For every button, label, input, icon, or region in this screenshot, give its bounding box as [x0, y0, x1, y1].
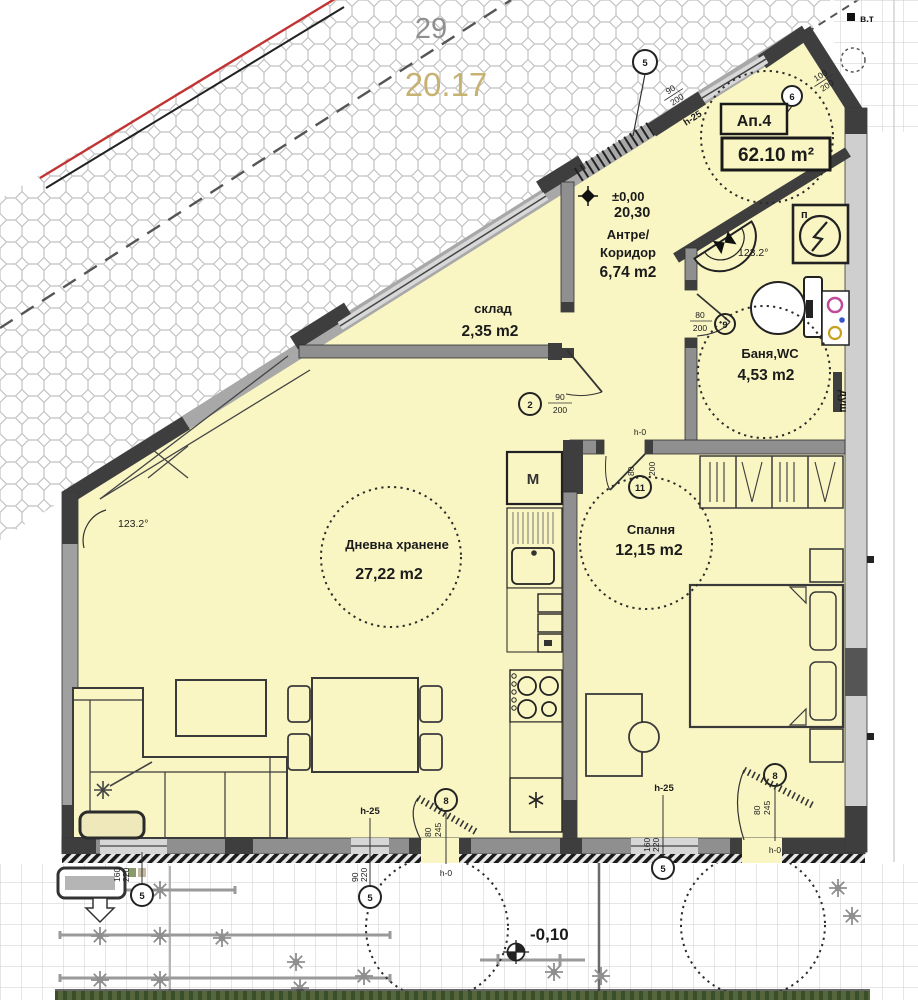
wardrobe: [700, 456, 843, 508]
sill-height-label-living: h-25: [360, 806, 380, 817]
washer-label: M: [527, 471, 540, 488]
bedroom-north-wall-right: [645, 440, 845, 454]
bedroom-area-label: 12,15 m2: [615, 542, 683, 559]
kitchen-wall-pier-bottom: [563, 800, 577, 838]
nightstand: [810, 549, 843, 582]
left-window-number: 5: [139, 891, 145, 902]
dining-set: [288, 678, 442, 772]
toilet-bowl: [751, 282, 805, 334]
kitchen-east-wall: [563, 492, 577, 838]
grass-strip: [55, 991, 870, 1000]
sill-height-label-bedroom: h-25: [654, 783, 674, 794]
storage-door-height: 200: [553, 405, 567, 415]
angle-bath-label: 123.2°: [738, 247, 768, 259]
right-wall-tick-2: [867, 733, 874, 740]
bedroom-balcony-width: 80: [752, 805, 762, 815]
tv-table: [176, 680, 266, 736]
dining-chair: [420, 734, 442, 770]
storage-area-label: 2,35 m2: [462, 323, 519, 340]
left-window-height: 220: [121, 868, 131, 882]
bedroom-door-height: 200: [647, 462, 657, 476]
bedroom-window-height: 220: [651, 838, 661, 852]
shower-label: душ: [837, 390, 849, 412]
right-wall-pier-mid: [845, 648, 867, 696]
toilet-flush: [806, 300, 813, 318]
kitchen-cabinet-2: [538, 614, 562, 632]
storage-south-wall: [299, 345, 560, 358]
nightstand: [810, 729, 843, 762]
mid-window-number: 5: [367, 893, 373, 904]
threshold-label-living: h-0: [440, 868, 453, 878]
storage-name-label: склад: [474, 301, 512, 316]
dining-table: [312, 678, 418, 772]
hall-name-line1: Антре/: [607, 227, 650, 242]
right-wall-pier-top: [845, 108, 867, 134]
bath-door-jamb-1: [685, 280, 697, 290]
living-name-label: Дневна хранене: [345, 537, 449, 552]
living-area-label: 27,22 m2: [355, 566, 423, 583]
angle-living-label: 123.2°: [118, 518, 148, 530]
mid-window-height: 220: [359, 868, 369, 882]
storage-door-width: 90: [555, 392, 565, 402]
floor-plan-canvas: в.т 29 20.17 -0,10: [0, 0, 918, 1000]
storage-marker-number: 2: [527, 400, 532, 411]
dining-chair: [420, 686, 442, 722]
bath-marker-number: 9: [722, 320, 727, 331]
benchmark-icon: [847, 13, 855, 21]
panel-label: п: [801, 209, 808, 221]
garden-area: -0,10: [0, 853, 918, 1000]
bath-door-height: 200: [693, 323, 707, 333]
bath-west-wall-lower: [685, 338, 697, 452]
storage-east-wall: [561, 182, 574, 312]
apt-number-label: Ап.4: [737, 113, 772, 130]
bedroom-door-width: 80: [626, 466, 636, 476]
door-marker-entry-number: 5: [642, 58, 648, 69]
bath-area-label: 4,53 m2: [738, 367, 795, 384]
desk-chair: [629, 722, 659, 752]
living-balcony-width: 80: [423, 827, 433, 837]
dining-chair: [288, 686, 310, 722]
bedroom-window-number: 5: [660, 864, 666, 875]
ottoman: [80, 812, 144, 838]
hall-area-label: 6,74 m2: [600, 264, 657, 281]
bath-name-label: Баня,WC: [741, 346, 799, 361]
kitchen-cabinet-1: [538, 594, 562, 612]
kitchen-cabinet-mark: [544, 640, 552, 646]
living-balcony-number: 8: [443, 796, 448, 807]
pillow: [810, 592, 836, 650]
storage-wall-jamb: [548, 343, 562, 360]
lot-number-label: 29: [415, 13, 447, 45]
boiler: [822, 291, 849, 345]
right-wall-pier-bottom: [845, 806, 867, 852]
bedroom-name-label: Спалня: [627, 522, 675, 537]
hall-name-line2: Коридор: [600, 245, 656, 260]
apt-area-label: 62.10 m²: [738, 145, 814, 166]
bath-door-jamb-2: [685, 338, 697, 348]
kitchen-wall-pier: [563, 440, 583, 494]
sink-faucet-icon: [531, 550, 537, 556]
right-wall-tick-1: [867, 556, 874, 563]
bedroom-balcony-number: 8: [772, 771, 777, 782]
living-balcony-opening: [421, 838, 459, 863]
kitchen-counter-2: [510, 722, 562, 778]
bath-door-width: 80: [695, 310, 705, 320]
pillow: [810, 662, 836, 720]
vestibule-marker-number: 6: [789, 92, 794, 103]
floor-plan-page: в.т 29 20.17 -0,10: [0, 0, 918, 1000]
threshold-label-bedroom-balcony: h-0: [769, 845, 782, 855]
storage-door-jamb-1: [561, 302, 574, 312]
entry-level-rel-label: ±0,00: [612, 189, 644, 204]
terrace-level-label: -0,10: [530, 925, 569, 944]
site-elevation-label: 20.17: [405, 66, 488, 103]
bedroom-door-jamb-2: [645, 440, 653, 454]
kitchen-fixtures: [507, 452, 562, 832]
bedroom-marker-number: 11: [635, 483, 646, 494]
dining-chair: [288, 734, 310, 770]
bedroom-balcony-height: 245: [762, 801, 772, 815]
benchmark-label: в.т: [860, 14, 874, 25]
threshold-label-bedroom: h-0: [634, 427, 647, 437]
garden-bench-inner: [65, 876, 115, 890]
bedroom-door-jamb-1: [596, 440, 604, 454]
living-balcony-height: 245: [433, 823, 443, 837]
left-wall-pier-top: [62, 492, 78, 544]
entry-level-abs-label: 20,30: [614, 205, 650, 221]
